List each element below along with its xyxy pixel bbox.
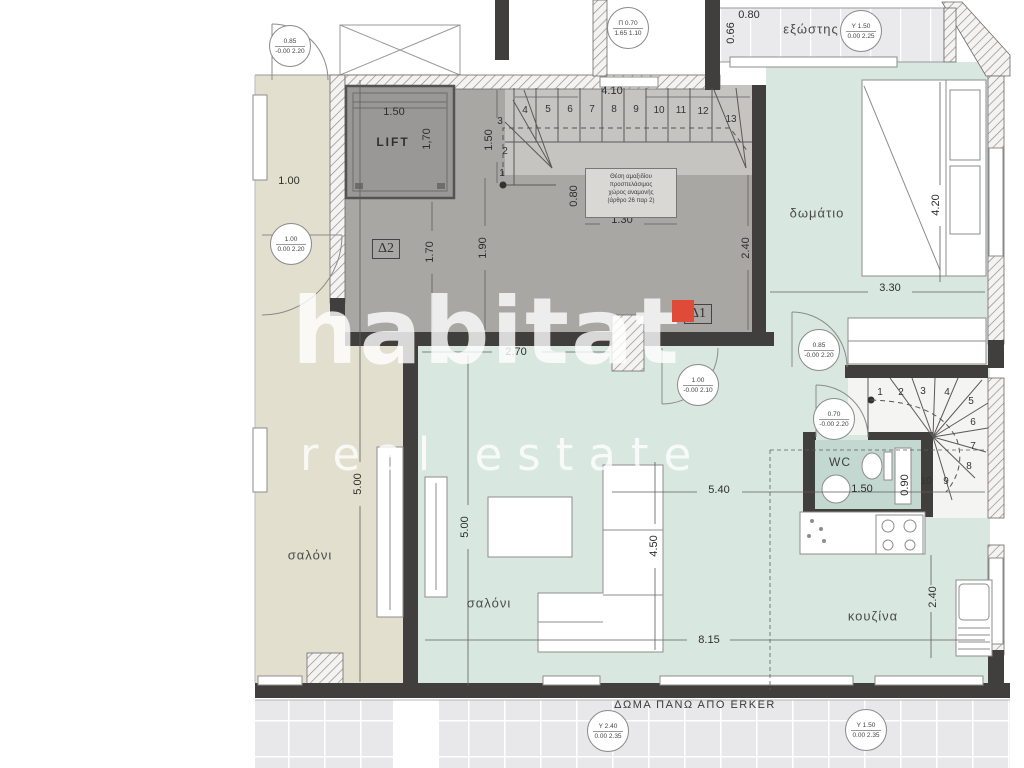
stair-number: 5: [964, 396, 978, 407]
tag-d2: Δ2: [372, 239, 400, 259]
dim-hall-a: 1.70: [424, 241, 436, 262]
dim-wc-depth: 0.90: [899, 474, 911, 495]
stair-number: 8: [962, 461, 976, 472]
stair-number: 8: [607, 104, 621, 115]
symbol-door-upper-left: 0.85-0.00 2.20: [269, 25, 311, 67]
symbol-door-wc: 0.70-0.00 2.20: [813, 398, 855, 440]
dim-bedroom-depth: 4.20: [930, 194, 942, 215]
dim-total-span: 8.15: [698, 634, 719, 646]
watermark-brand: habitat: [292, 278, 681, 385]
room-label-wc: WC: [829, 455, 851, 469]
dim-wait-depth: 0.80: [568, 185, 580, 206]
stair-number: 2: [498, 146, 512, 157]
dim-kitchen-depth: 2.40: [927, 586, 939, 607]
room-label-balcony: εξώστης: [783, 22, 838, 37]
stair-number: 4: [518, 105, 532, 116]
stair-number: 3: [916, 386, 930, 397]
stair-number: 9: [939, 476, 953, 487]
dim-lift-width: 1.50: [383, 106, 404, 118]
dim-lift-depth: 1,70: [421, 128, 433, 149]
dim-left-wall: 1.00: [278, 175, 299, 187]
dim-wc-width: 1.50: [851, 483, 872, 495]
stair-number: 1: [873, 387, 887, 398]
symbol-window-terrace-right: Y 1.500.00 2.35: [845, 709, 887, 751]
dim-bedroom-width: 3.30: [879, 282, 900, 294]
watermark-red-dot-icon: [672, 300, 694, 322]
symbol-window-pi: Π 0.701.65 1.10: [607, 7, 649, 49]
label-roof-over-erker: ΔΩΜΑ ΠΑΝΩ ΑΠΟ ERKER: [614, 699, 776, 711]
stair-number: 9: [629, 104, 643, 115]
dim-hall-right: 2.40: [740, 237, 752, 258]
dim-sofa-span: 4.50: [648, 535, 660, 556]
skylight-terrace: [340, 25, 460, 75]
stair-number: 5: [541, 104, 555, 115]
symbol-window-terrace-left: Y 2.400.00 2.35: [587, 710, 629, 752]
room-label-salon-left: σαλόνι: [288, 548, 332, 563]
dim-balcony-depth: 0.66: [725, 22, 737, 43]
dim-stair-winder: 1.50: [483, 129, 495, 150]
floor-plan: habitat real estate 1.50 LIFT 1,70 εξώστ…: [0, 0, 1024, 768]
dim-kitchen-span: 5.40: [708, 484, 729, 496]
stair-number: 11: [674, 105, 688, 116]
stair-number: 3: [493, 116, 507, 127]
stair-number: 7: [585, 104, 599, 115]
room-label-bedroom: δωμάτιο: [790, 206, 845, 221]
stair-number: 7: [966, 441, 980, 452]
stair-number: 10: [919, 476, 933, 487]
dim-stair-run: 4.10: [601, 85, 622, 97]
symbol-window-balcony: Y 1.500.00 2.25: [840, 10, 882, 52]
stair-number: 13: [724, 114, 738, 125]
watermark-tagline: real estate: [300, 428, 706, 481]
dim-salon-main-depth: 5.00: [459, 516, 471, 537]
symbol-door-entry: 1.00-0.00 2.10: [677, 364, 719, 406]
dim-balcony-width: 0.80: [738, 9, 759, 21]
stair-number: 10: [652, 105, 666, 116]
stair-number: 6: [966, 417, 980, 428]
stair-number: 4: [940, 387, 954, 398]
room-label-lift: LIFT: [376, 135, 409, 149]
room-label-kitchen: κουζίνα: [848, 609, 898, 624]
stair-number: 12: [696, 106, 710, 117]
symbol-door-left: 1.000.00 2.20: [270, 223, 312, 265]
dim-hall-b: 1.90: [477, 237, 489, 258]
room-label-salon-main: σαλόνι: [467, 596, 511, 611]
stair-number: 6: [563, 104, 577, 115]
wheelchair-waiting-note: Θέση αμαξιδίου προσπελάσιμος χώρος αναμο…: [585, 168, 677, 218]
stair-number: 2: [894, 387, 908, 398]
symbol-door-bedroom: 0.85-0.00 2.20: [798, 329, 840, 371]
stair-number: 1: [495, 168, 509, 179]
